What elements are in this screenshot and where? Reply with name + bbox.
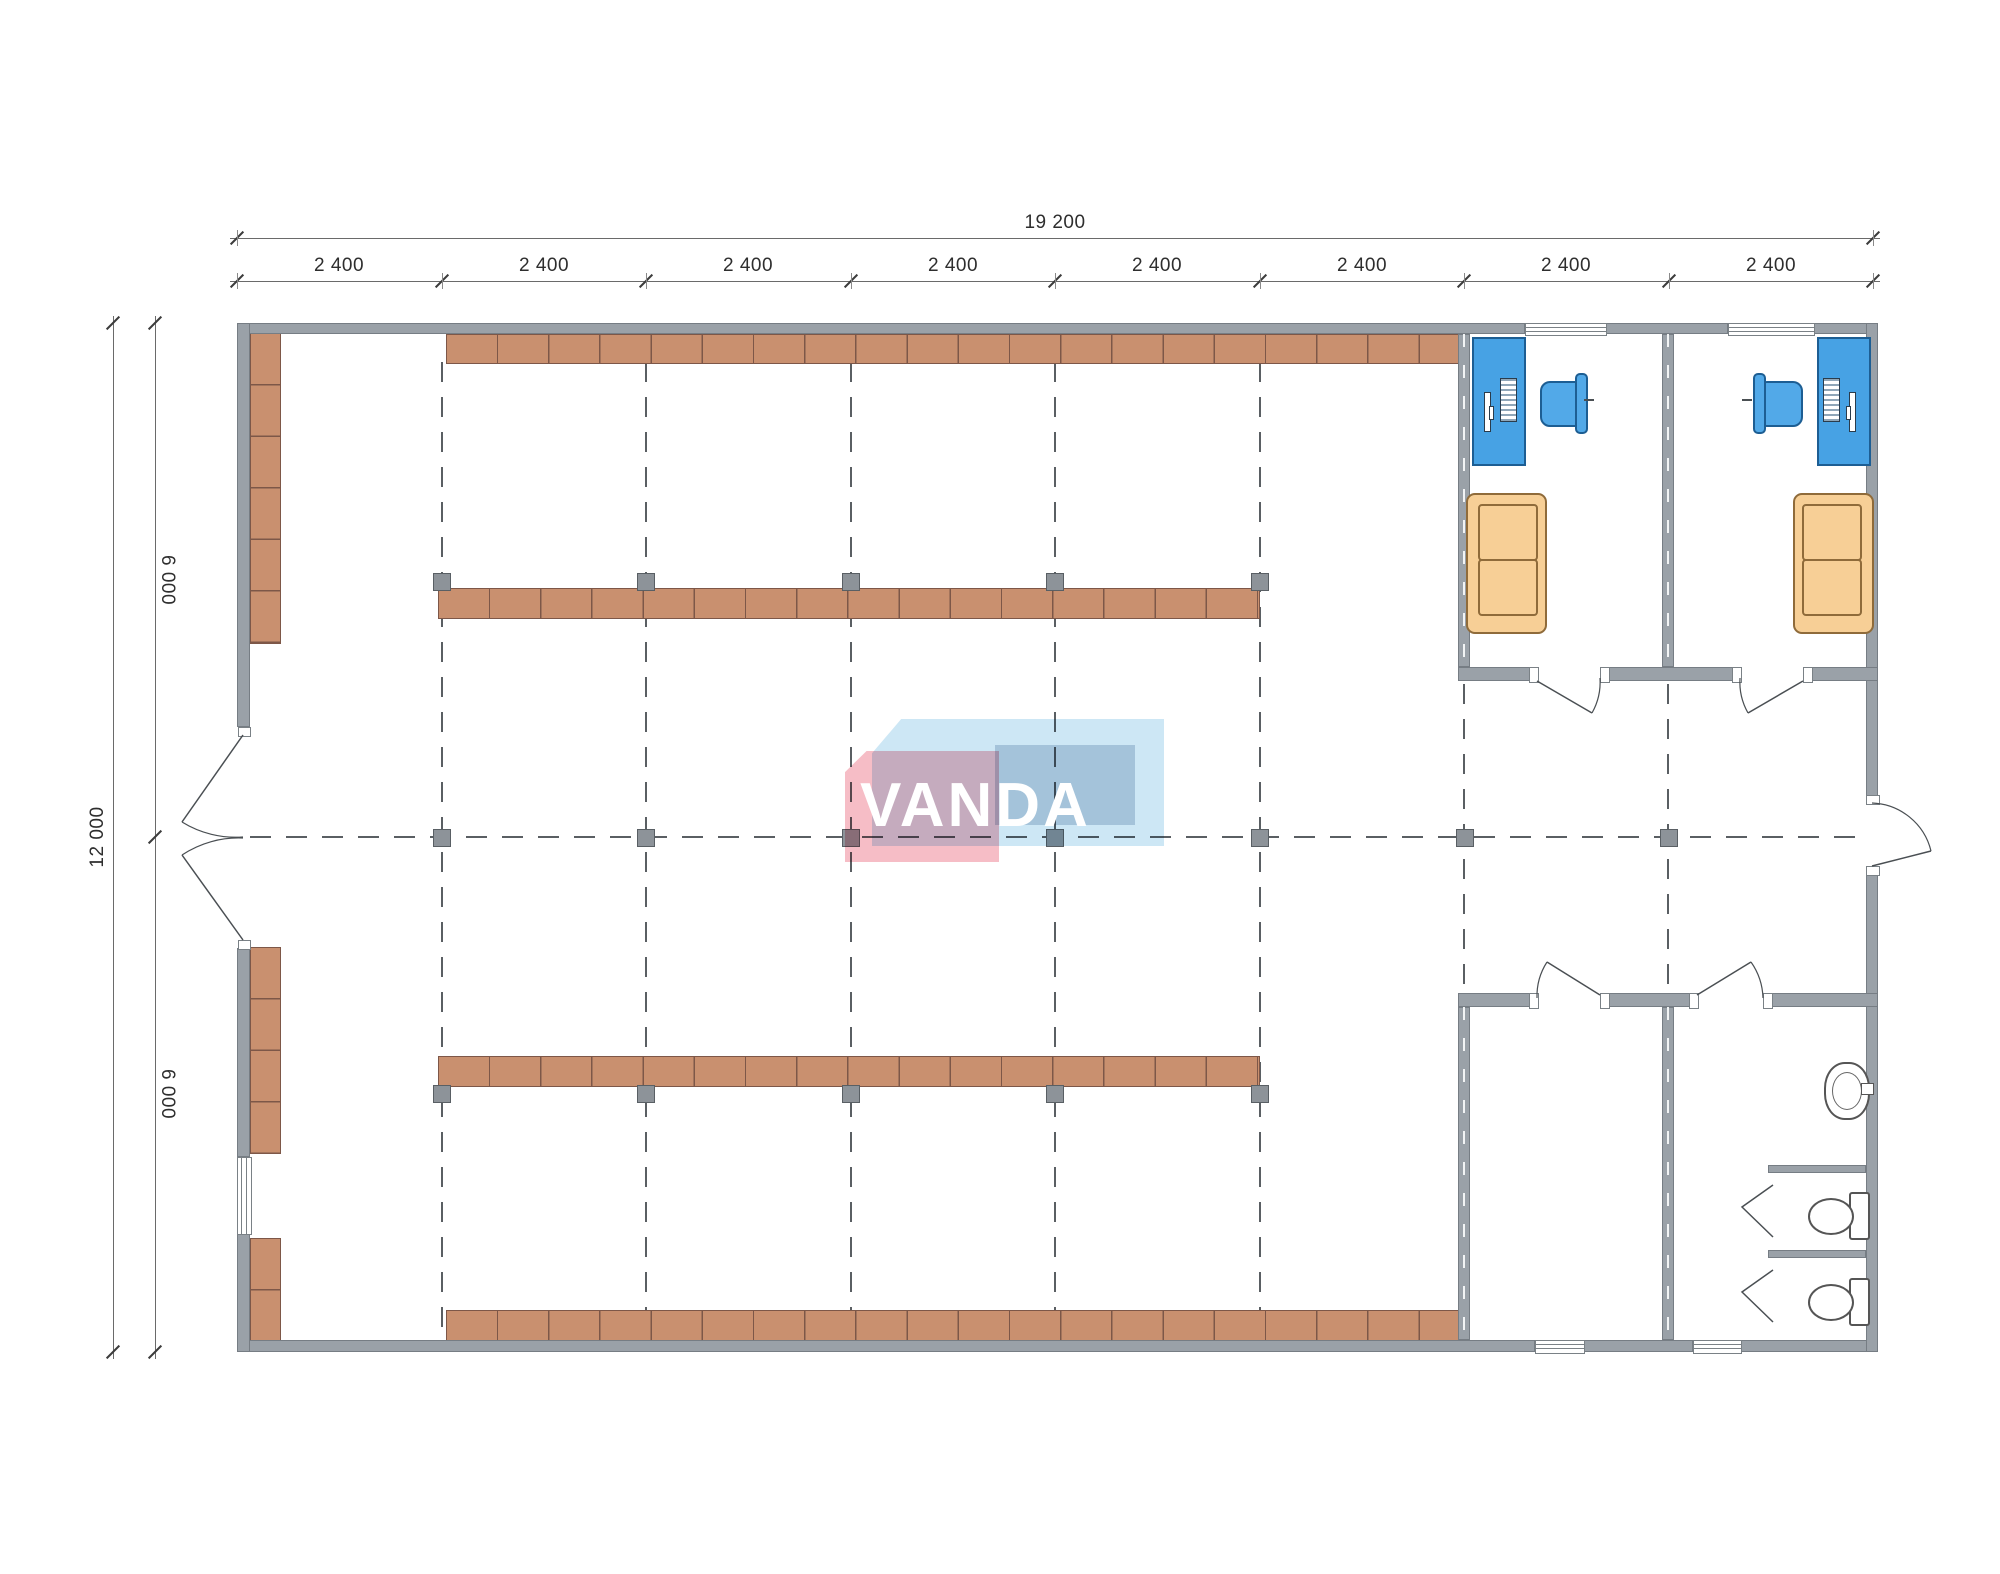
dim-stub (1260, 273, 1261, 289)
stall-door (1742, 1270, 1773, 1322)
door-arc (1537, 962, 1547, 998)
dim-stub (237, 230, 238, 246)
logo-text: VANDA (860, 770, 1091, 841)
door-leaf (1547, 962, 1600, 995)
dim-stub (442, 273, 443, 289)
door-leaf (182, 855, 243, 940)
door-arc (1751, 962, 1763, 998)
dim-stub (237, 273, 238, 289)
door-arc (1872, 803, 1931, 851)
dimension-line-total-height (113, 316, 114, 1359)
dimension-label-bay: 2 400 (1721, 255, 1821, 277)
door-leaf (1872, 851, 1931, 866)
door-arc (182, 822, 243, 837)
dimension-label-height-segment: 6 000 (158, 525, 178, 635)
door-arc (1592, 678, 1600, 713)
door-arc (1740, 678, 1748, 713)
dim-stub (851, 273, 852, 289)
dim-stub (646, 273, 647, 289)
door-arc (182, 838, 243, 855)
dimension-label-bay: 2 400 (494, 255, 594, 277)
dim-stub (1669, 273, 1670, 289)
stall-door (1742, 1185, 1773, 1237)
door-leaf (1697, 962, 1751, 995)
dimension-label-bay: 2 400 (1516, 255, 1616, 277)
dimension-label-bay: 2 400 (903, 255, 1003, 277)
dimension-label-total-width: 19 200 (1005, 212, 1105, 234)
dimension-label-bay: 2 400 (1107, 255, 1207, 277)
door-leaf (182, 735, 243, 822)
dim-stub (1873, 230, 1874, 246)
dim-stub (1464, 273, 1465, 289)
dimension-label-bay: 2 400 (698, 255, 798, 277)
dimension-label-height-segment: 6 000 (158, 1039, 178, 1149)
door-leaf (1537, 681, 1592, 713)
dim-stub (1055, 273, 1056, 289)
floor-plan: 19 200 2 400 2 400 2 400 2 400 2 400 2 4… (0, 0, 2000, 1574)
dimension-line-total-width (230, 238, 1880, 239)
dimension-label-total-height: 12 000 (87, 782, 107, 892)
door-leaf (1748, 681, 1803, 713)
dimension-label-bay: 2 400 (289, 255, 389, 277)
dim-stub (1873, 273, 1874, 289)
dimension-label-bay: 2 400 (1312, 255, 1412, 277)
